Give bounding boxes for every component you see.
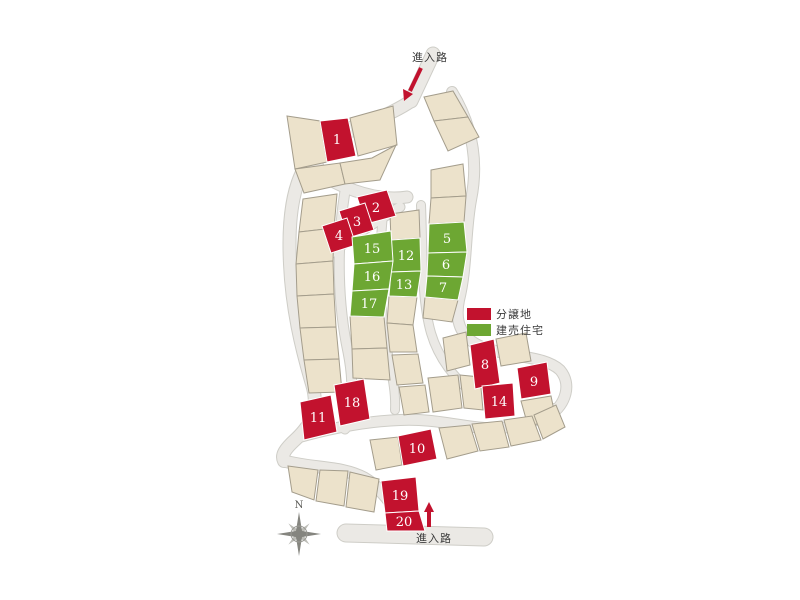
lot-number: 18 [344, 396, 361, 411]
compass-north-label: N [295, 500, 304, 511]
lot-12[interactable]: 12 [391, 238, 421, 272]
lot-number: 11 [310, 411, 327, 426]
lot [346, 472, 379, 512]
legend-swatch-built [467, 324, 491, 336]
lot-number: 20 [396, 515, 413, 530]
lot-number: 16 [364, 270, 381, 285]
lot [496, 333, 531, 366]
lot [370, 437, 402, 470]
lot-20[interactable]: 20 [385, 511, 425, 531]
lot [387, 323, 417, 352]
lot [431, 164, 466, 198]
lot-13[interactable]: 13 [389, 271, 421, 297]
lot [392, 354, 423, 385]
compass-point-east [299, 531, 321, 538]
lot-8[interactable]: 8 [470, 339, 500, 389]
lot-9[interactable]: 9 [517, 362, 551, 399]
legend-label-sale: 分譲地 [496, 307, 532, 321]
lot-18[interactable]: 18 [334, 379, 370, 426]
lot [443, 332, 470, 371]
entrance-top-label: 進入路 [412, 51, 448, 64]
lot-number: 7 [439, 281, 447, 296]
lot-number: 10 [409, 442, 426, 457]
lot-number: 12 [398, 249, 415, 264]
lot-11[interactable]: 11 [300, 395, 337, 440]
lot-number: 14 [491, 395, 508, 410]
lot-17[interactable]: 17 [350, 289, 389, 317]
lot-19[interactable]: 19 [381, 477, 419, 513]
road-entrance-bottom [346, 533, 484, 537]
entrance-bottom-arrow-icon [424, 502, 434, 512]
lot-number: 9 [530, 375, 538, 390]
lot-16[interactable]: 16 [352, 261, 393, 291]
lot [424, 91, 468, 121]
lot-10[interactable]: 10 [398, 429, 437, 466]
lot-14[interactable]: 14 [482, 383, 515, 419]
entrance-bottom-label: 進入路 [416, 532, 452, 545]
lot [300, 327, 339, 360]
lot-5[interactable]: 5 [428, 222, 467, 253]
lot [350, 316, 387, 349]
compass-center [297, 532, 302, 537]
lot [316, 470, 348, 506]
lot-number: 8 [481, 358, 489, 373]
lot-6[interactable]: 6 [427, 252, 467, 277]
lot-number: 5 [443, 232, 451, 247]
lot [297, 294, 336, 328]
lot-number: 2 [372, 201, 380, 216]
lot-number: 13 [396, 278, 413, 293]
lot [387, 296, 417, 325]
subdivision-map-page: 1 2 3 4 5 6 7 8 [0, 0, 800, 600]
lot-number: 15 [364, 242, 381, 257]
lot [399, 385, 429, 415]
lot [428, 375, 462, 412]
lot-15[interactable]: 15 [352, 231, 393, 264]
lot [288, 466, 318, 500]
lot-number: 3 [353, 215, 361, 230]
lot [429, 196, 466, 224]
legend: 分譲地 建売住宅 [467, 307, 544, 337]
site-map-canvas: 1 2 3 4 5 6 7 8 [0, 0, 800, 600]
lot [472, 421, 509, 451]
lot [352, 348, 390, 380]
compass-point-west [277, 531, 299, 538]
lot-number: 1 [333, 133, 341, 148]
compass-rose-icon: N [277, 500, 321, 556]
lot-7[interactable]: 7 [425, 276, 463, 300]
lot-number: 17 [361, 297, 378, 312]
lot [423, 297, 458, 322]
lot-number: 6 [442, 258, 450, 273]
legend-swatch-sale [467, 308, 491, 320]
lot-number: 4 [335, 229, 343, 244]
legend-label-built: 建売住宅 [496, 323, 544, 337]
lot-number: 19 [392, 489, 409, 504]
lot [296, 261, 334, 296]
